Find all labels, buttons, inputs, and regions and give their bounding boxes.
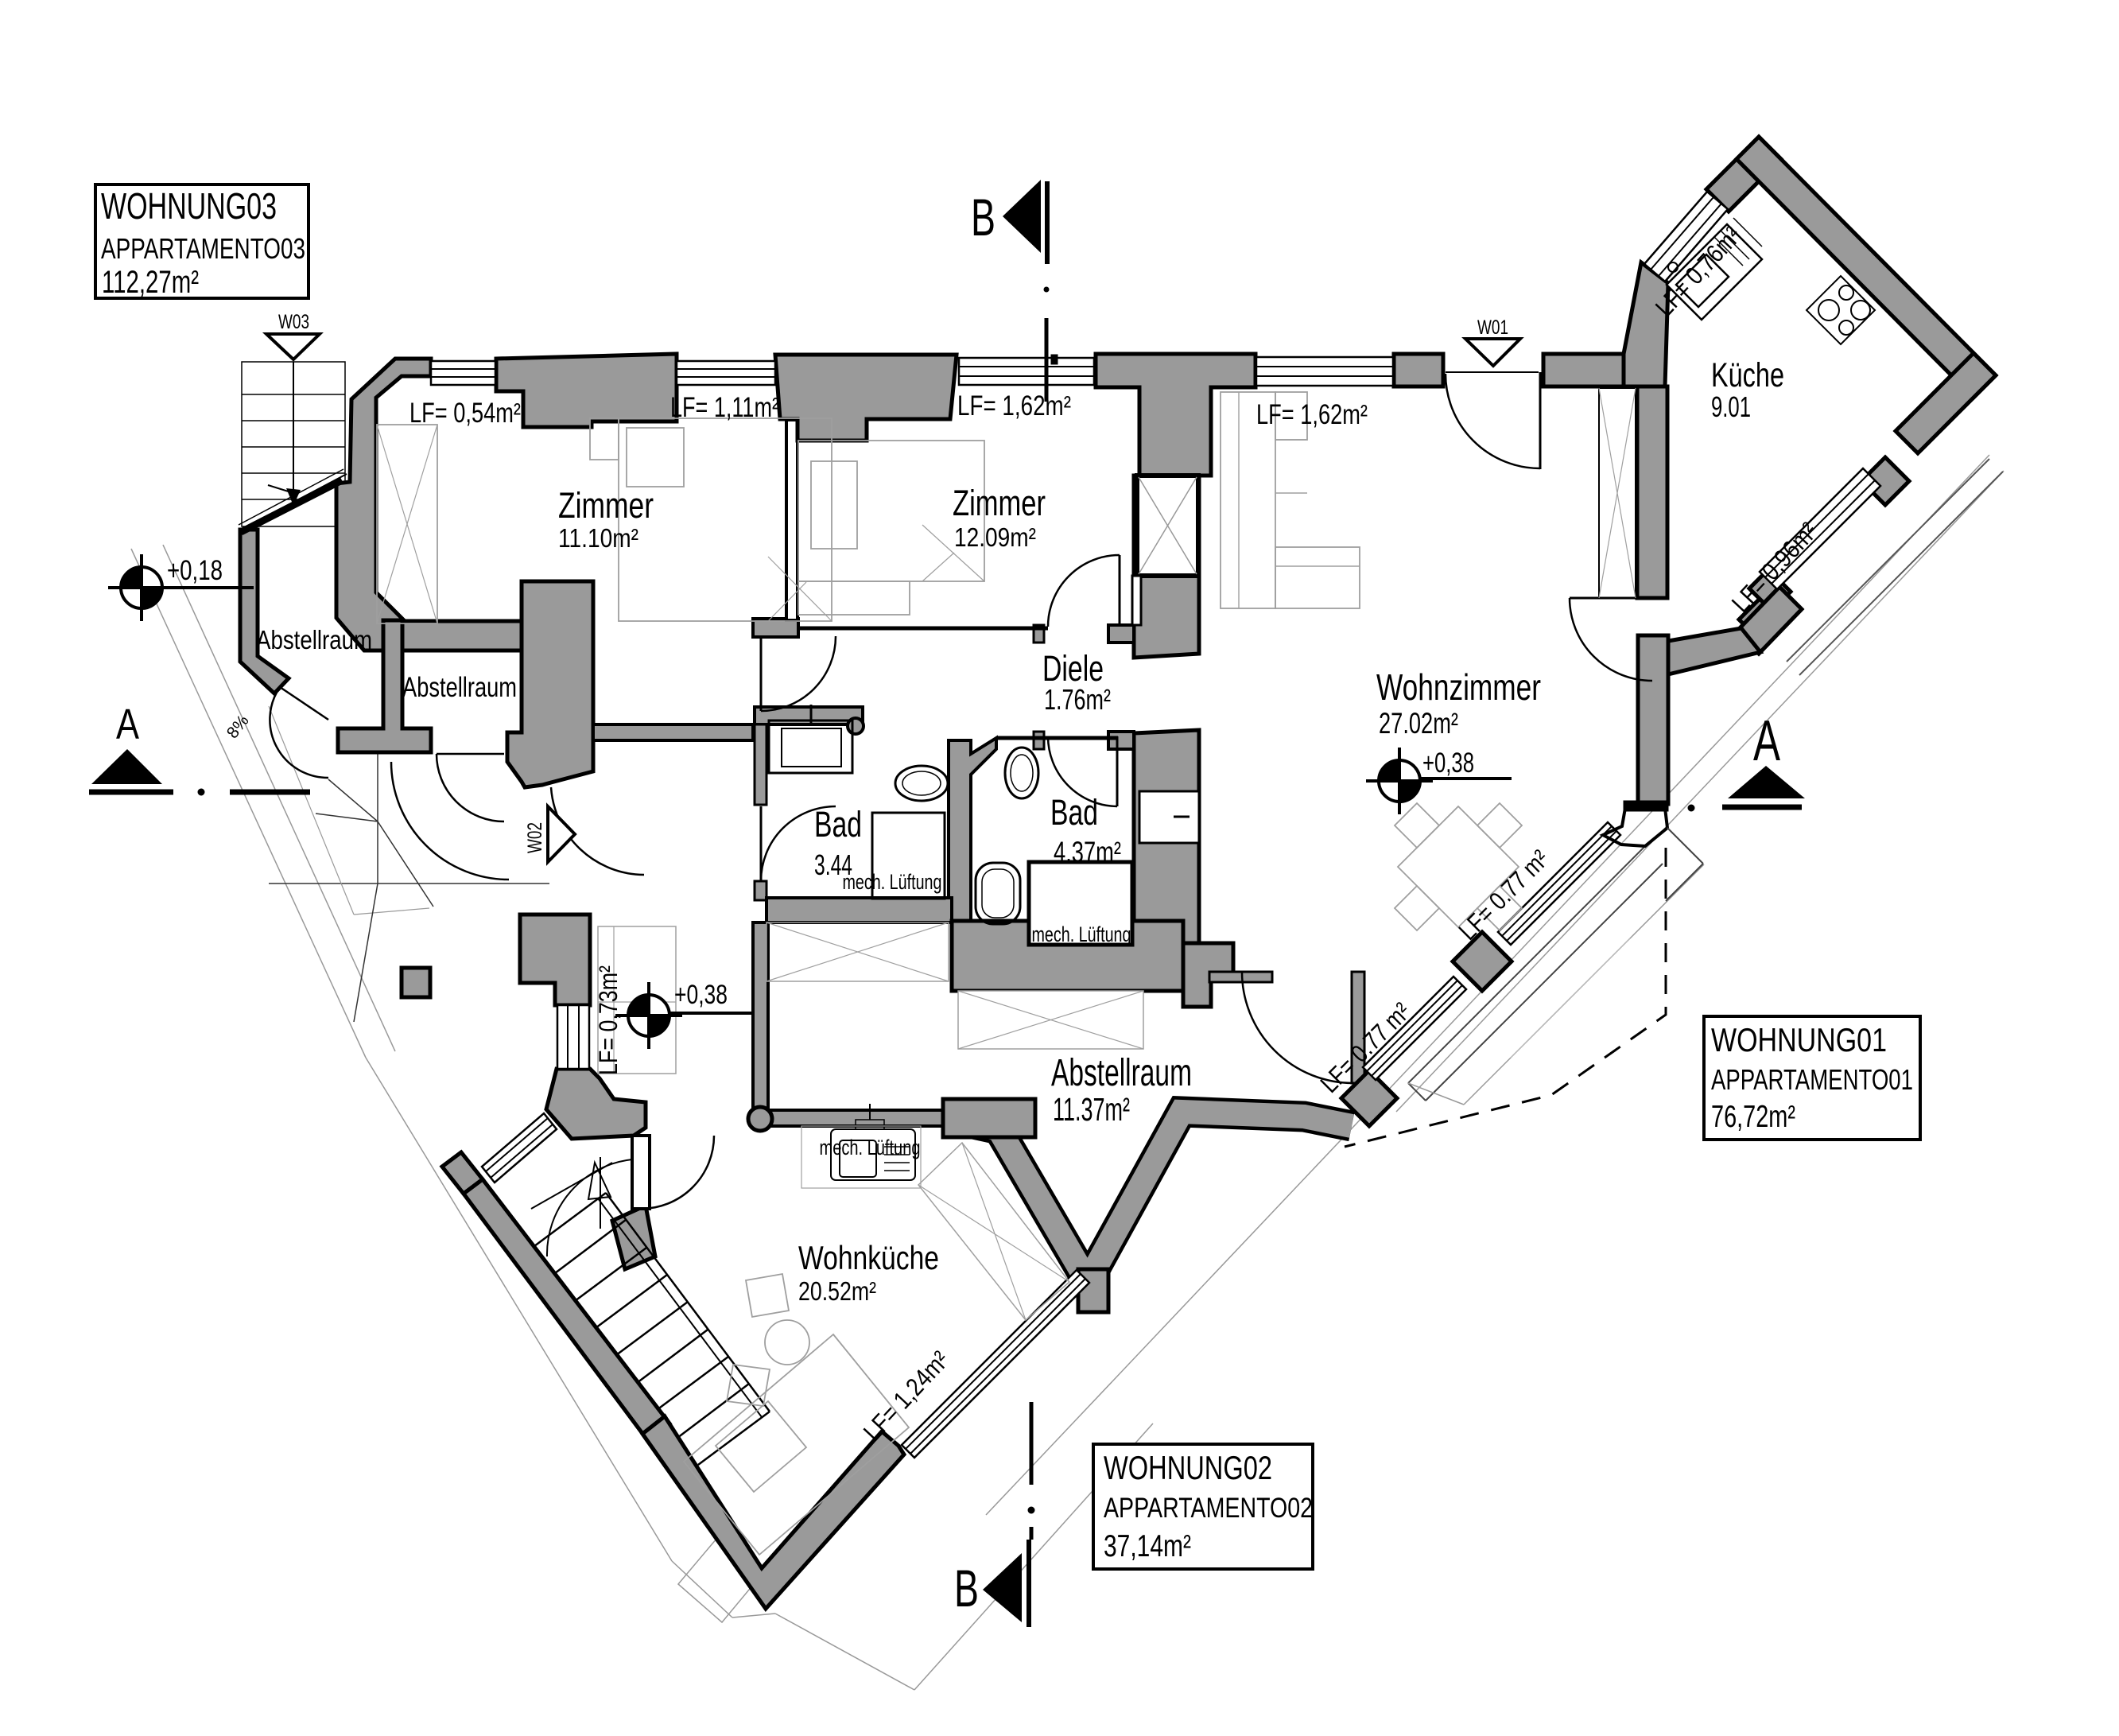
- svg-text:Bad: Bad: [814, 804, 862, 845]
- svg-text:A: A: [116, 701, 139, 748]
- svg-text:Küche: Küche: [1711, 356, 1784, 394]
- svg-text:+0,38: +0,38: [674, 980, 728, 1010]
- svg-text:W02: W02: [524, 822, 546, 853]
- svg-text:Zimmer: Zimmer: [953, 483, 1046, 523]
- svg-text:76,72m²: 76,72m²: [1711, 1100, 1795, 1134]
- svg-text:+0,18: +0,18: [167, 555, 223, 586]
- svg-text:mech. Lüftung: mech. Lüftung: [843, 870, 942, 894]
- svg-text:APPARTAMENTO03: APPARTAMENTO03: [101, 232, 305, 265]
- svg-text:WOHNUNG01: WOHNUNG01: [1711, 1021, 1887, 1058]
- svg-text:Zimmer: Zimmer: [558, 485, 654, 526]
- svg-text:LF= 0,54m²: LF= 0,54m²: [409, 398, 521, 429]
- svg-text:W01: W01: [1477, 317, 1508, 339]
- svg-text:WOHNUNG02: WOHNUNG02: [1104, 1449, 1272, 1486]
- svg-text:mech. Lüftung: mech. Lüftung: [1032, 922, 1131, 946]
- svg-text:WOHNUNG03: WOHNUNG03: [101, 185, 277, 227]
- svg-text:Bad: Bad: [1050, 792, 1098, 833]
- svg-text:9.01: 9.01: [1711, 390, 1751, 423]
- svg-text:Wohnzimmer: Wohnzimmer: [1376, 666, 1541, 708]
- svg-text:B: B: [971, 188, 995, 247]
- svg-text:Abstellraum: Abstellraum: [256, 625, 372, 654]
- svg-text:Wohnküche: Wohnküche: [798, 1239, 939, 1276]
- svg-text:APPARTAMENTO02: APPARTAMENTO02: [1104, 1493, 1313, 1524]
- svg-text:mech. Lüftung: mech. Lüftung: [820, 1136, 921, 1159]
- svg-text:LF= 1,62m²: LF= 1,62m²: [1256, 399, 1368, 430]
- svg-text:A: A: [1753, 709, 1780, 773]
- svg-text:112,27m²: 112,27m²: [102, 265, 199, 300]
- svg-text:1.76m²: 1.76m²: [1044, 683, 1111, 716]
- svg-text:27.02m²: 27.02m²: [1379, 707, 1458, 740]
- svg-text:11.10m²: 11.10m²: [558, 523, 638, 553]
- svg-text:APPARTAMENTO01: APPARTAMENTO01: [1711, 1063, 1913, 1096]
- svg-text:20.52m²: 20.52m²: [798, 1276, 876, 1306]
- svg-text:LF= 1,11m²: LF= 1,11m²: [670, 392, 779, 423]
- svg-text:+0,38: +0,38: [1422, 748, 1474, 779]
- svg-text:12.09m²: 12.09m²: [954, 522, 1036, 552]
- svg-text:37,14m²: 37,14m²: [1104, 1529, 1191, 1563]
- svg-text:LF= 0,73m²: LF= 0,73m²: [594, 965, 623, 1075]
- svg-text:B: B: [954, 1559, 979, 1618]
- svg-text:Abstellraum: Abstellraum: [402, 672, 517, 703]
- svg-text:4.37m²: 4.37m²: [1054, 836, 1121, 868]
- svg-text:LF= 1,62m²: LF= 1,62m²: [957, 390, 1071, 421]
- svg-text:Abstellraum: Abstellraum: [1051, 1052, 1192, 1094]
- svg-text:11.37m²: 11.37m²: [1053, 1091, 1130, 1128]
- svg-text:W03: W03: [278, 311, 309, 333]
